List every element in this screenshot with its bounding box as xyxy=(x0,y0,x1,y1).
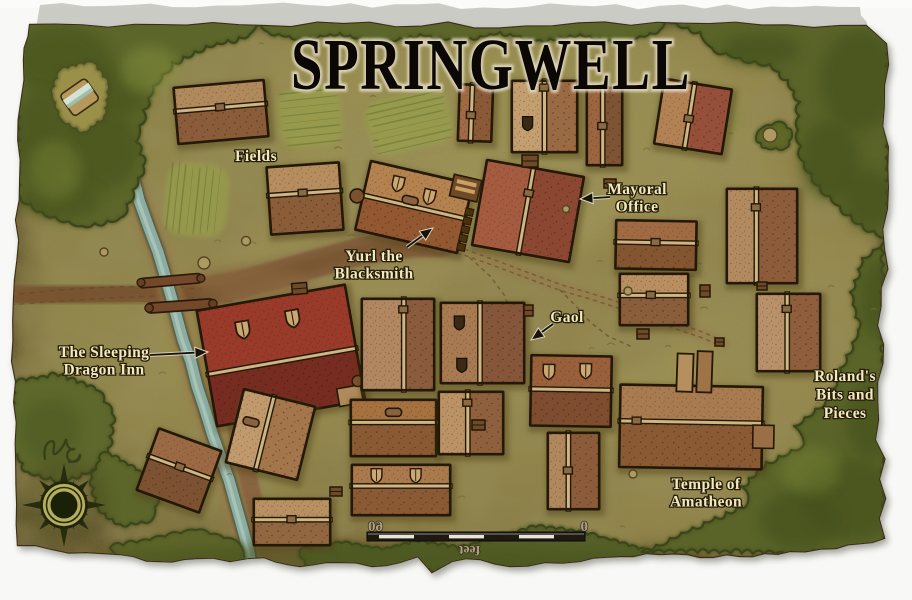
svg-text:Gaol: Gaol xyxy=(550,309,584,326)
svg-text:Mayoral: Mayoral xyxy=(607,181,667,198)
svg-text:0: 0 xyxy=(581,519,589,535)
svg-text:Pieces: Pieces xyxy=(824,405,867,422)
svg-text:Fields: Fields xyxy=(235,148,277,165)
svg-text:Office: Office xyxy=(616,199,659,216)
svg-text:Yurl the: Yurl the xyxy=(345,248,402,265)
svg-text:Temple of: Temple of xyxy=(672,476,741,493)
svg-text:Blacksmith: Blacksmith xyxy=(335,266,414,283)
svg-text:Dragon Inn: Dragon Inn xyxy=(63,362,144,379)
svg-text:The Sleeping: The Sleeping xyxy=(59,344,150,361)
svg-text:Amatheon: Amatheon xyxy=(670,494,742,511)
svg-text:Bits and: Bits and xyxy=(816,387,874,404)
svg-text:SPRINGWELL: SPRINGWELL xyxy=(291,24,691,105)
svg-text:Roland's: Roland's xyxy=(814,368,876,385)
svg-text:60: 60 xyxy=(368,519,383,535)
svg-text:feet: feet xyxy=(459,543,480,558)
